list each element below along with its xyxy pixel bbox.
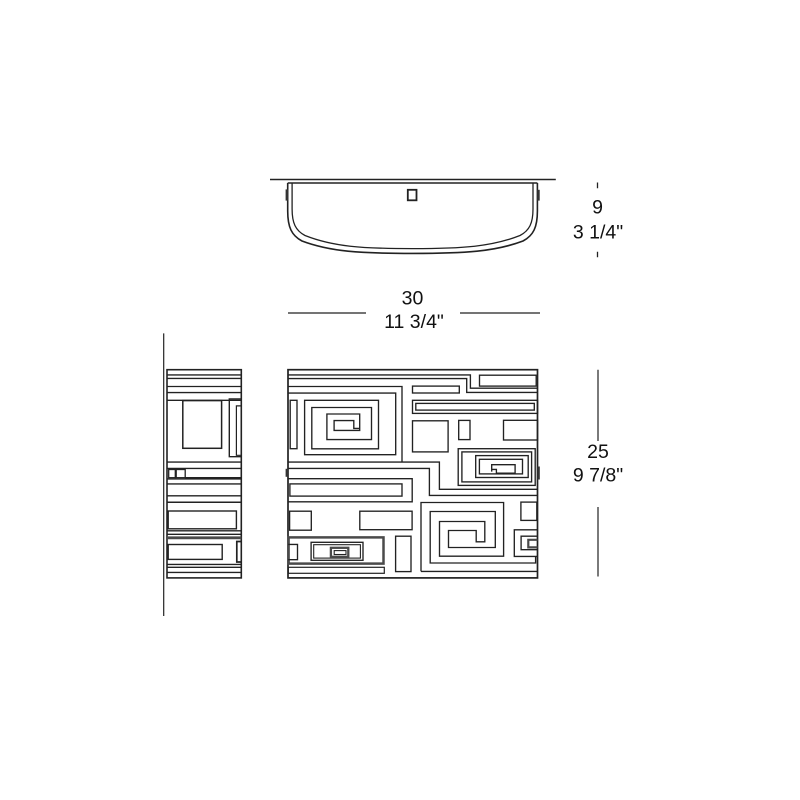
- svg-text:30: 30: [402, 288, 424, 310]
- svg-text:11 3/4": 11 3/4": [384, 311, 444, 333]
- svg-text:9: 9: [592, 197, 603, 219]
- svg-text:3 1/4": 3 1/4": [573, 222, 623, 244]
- svg-text:25: 25: [587, 441, 609, 463]
- svg-text:9 7/8": 9 7/8": [573, 465, 623, 487]
